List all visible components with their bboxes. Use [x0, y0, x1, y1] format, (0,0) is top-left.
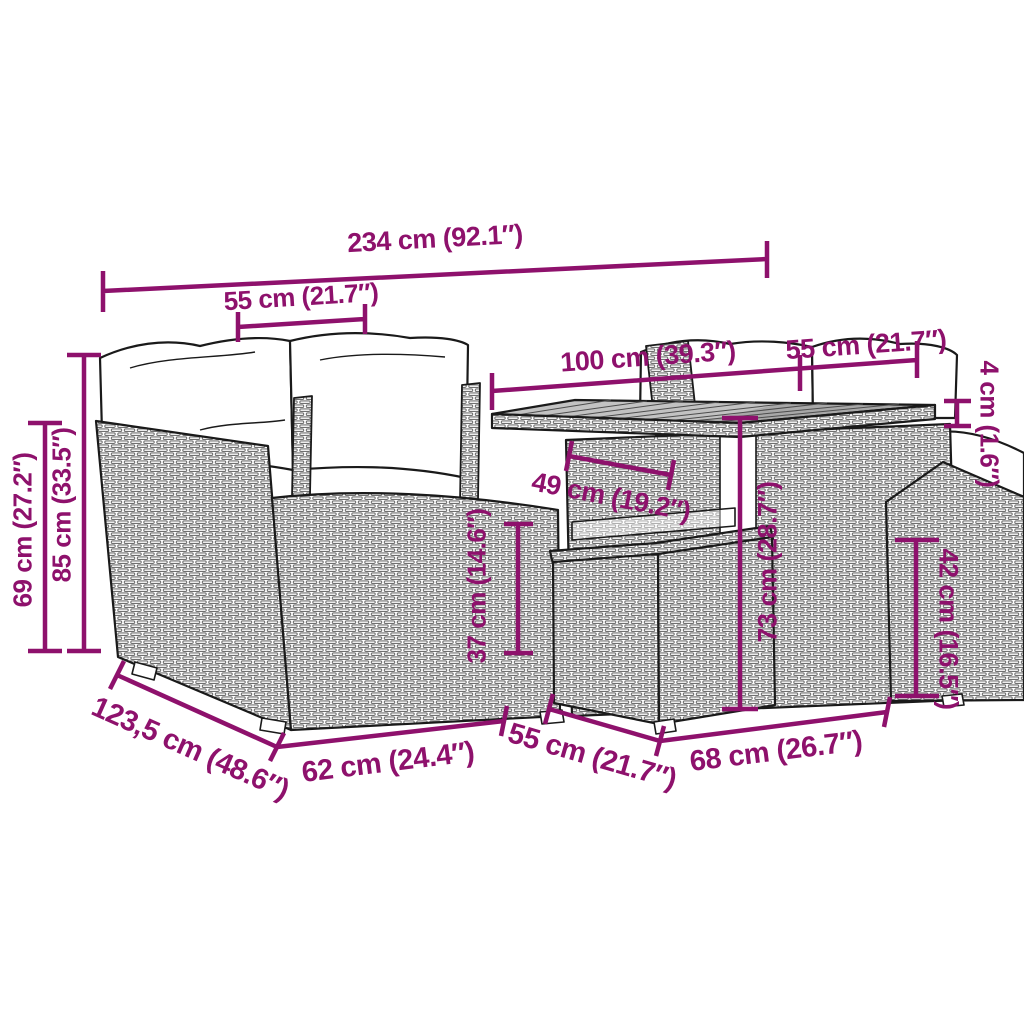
dim-label-total-height: 85 cm (33.5″) [47, 428, 78, 583]
dim-label-tabletop-thickness: 4 cm (1.6″) [974, 361, 1005, 488]
dim-label-right-seat-height: 42 cm (16.5″) [933, 548, 964, 709]
dim-label-armrest-height: 69 cm (27.2″) [8, 453, 39, 608]
sofa-side-panel [96, 421, 291, 730]
backrest-post-2 [460, 383, 480, 502]
dim-label-ottoman-height: 37 cm (14.6″) [462, 509, 493, 664]
furniture-line-art [0, 0, 1024, 1024]
ottoman-side-panel [553, 554, 659, 724]
backrest-post-1 [292, 396, 312, 497]
dim-label-table-height: 73 cm (28.7″) [753, 481, 784, 642]
dimension-diagram: 234 cm (92.1″) 55 cm (21.7″) 100 cm (39.… [0, 0, 1024, 1024]
